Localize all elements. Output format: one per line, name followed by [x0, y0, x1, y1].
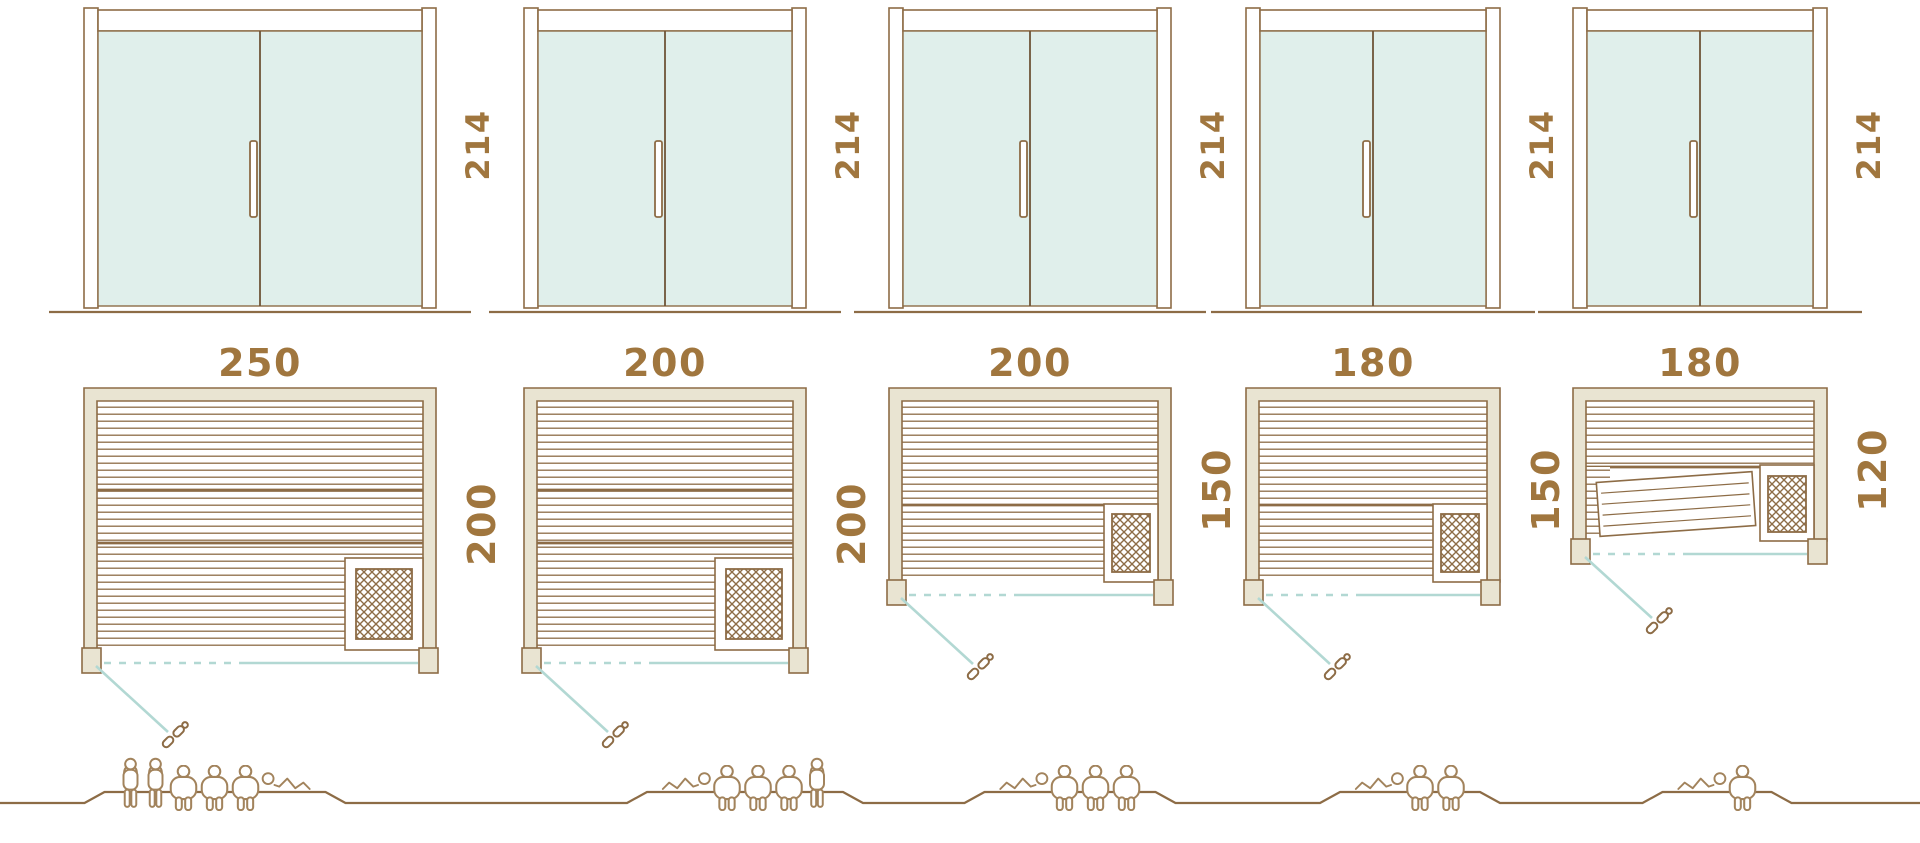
diagram-canvas: 214 250 200 — [0, 0, 1920, 843]
door-frame-left-post — [524, 8, 538, 308]
door-swing-line — [536, 666, 608, 732]
person-standing-icon — [810, 759, 824, 807]
sauna-size-comparison-diagram: 214 250 200 — [0, 0, 1920, 843]
door-height-label: 214 — [1523, 109, 1561, 180]
column-sauna-200x200: 214 200 200 — [489, 8, 874, 749]
plan-width-label: 180 — [1331, 341, 1415, 385]
plan-depth-label: 120 — [1851, 428, 1895, 512]
floor-plan — [1571, 388, 1827, 635]
column-sauna-250x200: 214 250 200 — [49, 8, 504, 749]
door-swing-line — [1585, 557, 1652, 618]
person-seated-icon — [745, 766, 771, 810]
door-handle-icon — [1690, 141, 1697, 217]
plan-width-label: 250 — [218, 341, 302, 385]
door-height-label: 214 — [1850, 109, 1888, 180]
floor-plan — [522, 388, 808, 749]
floor-plan — [887, 388, 1173, 681]
door-elevation — [1211, 8, 1535, 312]
plan-depth-label: 200 — [830, 482, 874, 566]
person-seated-icon — [1730, 766, 1756, 810]
tilted-bench — [1596, 472, 1755, 537]
door-handle-plan-icon — [966, 653, 994, 681]
door-handle-icon — [250, 141, 257, 217]
door-elevation — [489, 8, 841, 312]
door-frame-right-post — [1486, 8, 1500, 308]
door-lintel — [1587, 10, 1813, 31]
door-post-right — [419, 648, 438, 673]
door-post-right — [789, 648, 808, 673]
door-frame-left-post — [889, 8, 903, 308]
person-standing-icon — [149, 759, 163, 807]
door-lintel — [903, 10, 1157, 31]
person-seated-icon — [1083, 766, 1109, 810]
person-reclining-icon — [263, 773, 310, 789]
door-lintel — [98, 10, 422, 31]
heater-icon — [1112, 514, 1150, 572]
door-swing-line — [96, 666, 168, 732]
door-frame-left-post — [1246, 8, 1260, 308]
person-standing-icon — [124, 759, 138, 807]
person-reclining-icon — [1356, 773, 1403, 789]
heater-icon — [356, 569, 412, 639]
plan-width-label: 200 — [623, 341, 707, 385]
door-frame-right-post — [1157, 8, 1171, 308]
plan-depth-label: 150 — [1524, 448, 1568, 532]
person-seated-icon — [714, 766, 740, 810]
person-seated-icon — [1114, 766, 1140, 810]
door-frame-left-post — [84, 8, 98, 308]
door-elevation — [49, 8, 471, 312]
door-handle-plan-icon — [601, 721, 629, 749]
heater-icon — [1768, 476, 1806, 532]
seating-ground-line — [0, 792, 1920, 803]
person-seated-icon — [233, 766, 259, 810]
column-sauna-200x150: 214 200 150 — [854, 8, 1239, 681]
door-height-label: 214 — [1194, 109, 1232, 180]
door-handle-icon — [1020, 141, 1027, 217]
capacity-group-5-people — [663, 759, 824, 810]
heater-icon — [726, 569, 782, 639]
bench-slats — [1586, 401, 1814, 467]
plan-width-label: 180 — [1658, 341, 1742, 385]
floor-plan — [1244, 388, 1500, 681]
heater-icon — [1441, 514, 1479, 572]
column-sauna-180x150: 214 180 150 — [1211, 8, 1568, 681]
door-swing-line — [901, 598, 973, 664]
capacity-group-6-people — [124, 759, 310, 810]
door-height-label: 214 — [829, 109, 867, 180]
door-elevation — [1538, 8, 1862, 312]
person-reclining-icon — [663, 773, 710, 789]
capacity-row — [0, 759, 1920, 810]
plan-depth-label: 150 — [1195, 448, 1239, 532]
door-post-right — [1808, 539, 1827, 564]
person-seated-icon — [202, 766, 228, 810]
capacity-group-2-people — [1678, 766, 1755, 810]
door-post-right — [1154, 580, 1173, 605]
plan-width-label: 200 — [988, 341, 1072, 385]
door-handle-icon — [655, 141, 662, 217]
person-seated-icon — [171, 766, 197, 810]
door-handle-plan-icon — [161, 721, 189, 749]
person-seated-icon — [1052, 766, 1078, 810]
person-seated-icon — [1438, 766, 1464, 810]
person-seated-icon — [1407, 766, 1433, 810]
door-swing-line — [1258, 598, 1330, 664]
person-reclining-icon — [1000, 773, 1047, 789]
person-seated-icon — [776, 766, 802, 810]
door-elevation — [854, 8, 1206, 312]
floor-plan — [82, 388, 438, 749]
door-handle-plan-icon — [1645, 607, 1673, 635]
door-frame-left-post — [1573, 8, 1587, 308]
capacity-group-3-people — [1356, 766, 1464, 810]
capacity-group-4-people — [1000, 766, 1139, 810]
door-height-label: 214 — [459, 109, 497, 180]
door-lintel — [538, 10, 792, 31]
plan-depth-label: 200 — [460, 482, 504, 566]
door-lintel — [1260, 10, 1486, 31]
door-frame-right-post — [792, 8, 806, 308]
door-post-right — [1481, 580, 1500, 605]
door-frame-right-post — [422, 8, 436, 308]
column-sauna-180x120: 214 180 120 — [1538, 8, 1895, 635]
door-handle-plan-icon — [1323, 653, 1351, 681]
door-handle-icon — [1363, 141, 1370, 217]
person-reclining-icon — [1678, 773, 1725, 789]
door-frame-right-post — [1813, 8, 1827, 308]
